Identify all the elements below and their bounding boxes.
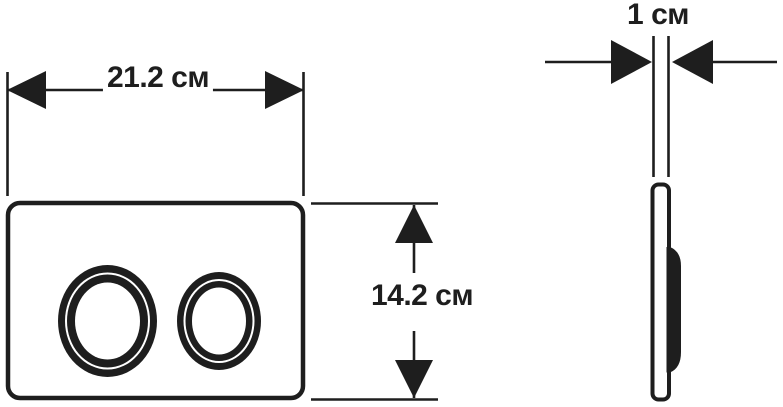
front-view [8,203,303,398]
width-arrowhead-left [7,71,46,109]
plate-outline [8,203,303,398]
dimension-diagram: 21.2 см 14.2 см 1 см [0,0,783,407]
height-arrowhead-down [395,360,433,398]
height-arrowhead-up [395,205,433,243]
width-arrowhead-right [265,71,304,109]
depth-dimension-label: 1 см [623,0,693,30]
small-flush-button [177,272,261,370]
large-flush-button [58,265,157,377]
side-button-bump [667,247,682,373]
width-dimension-label: 21.2 см [103,63,213,93]
small-button-face [192,288,246,355]
large-button-face [75,283,140,360]
depth-dimension [545,36,777,177]
depth-arrowhead-right-pointing [611,40,652,84]
height-dimension-label: 14.2 см [367,281,477,311]
side-view [653,185,682,400]
depth-arrowhead-left-pointing [672,40,713,84]
